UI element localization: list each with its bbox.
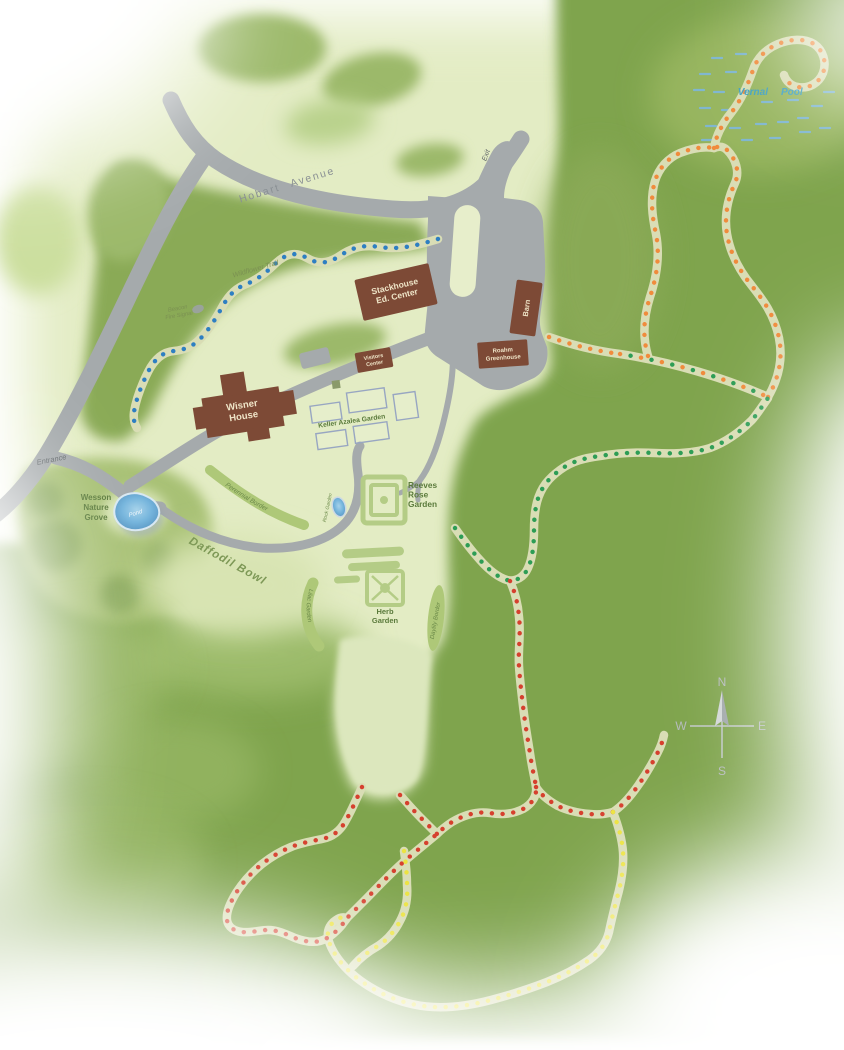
wisner-house-wing (220, 372, 247, 397)
rose-garden-center (380, 496, 388, 504)
azalea-bed (393, 392, 418, 421)
greenhouse-sign (477, 339, 529, 368)
vernal-pool-label-word1: Vernal (738, 87, 768, 98)
arboretum-trail-map: WisnerHouse StackhouseEd. Center Barn Vi… (0, 0, 844, 1050)
azalea-bed (346, 388, 386, 413)
tree-cluster (198, 14, 326, 82)
grove-tree (100, 575, 140, 615)
compass-e: E (758, 719, 766, 733)
map-canvas: WisnerHouse StackhouseEd. Center Barn Vi… (0, 0, 844, 1050)
compass-w: W (675, 719, 687, 733)
lawn-tongue (336, 636, 431, 793)
compass-s: S (718, 764, 726, 778)
wesson-nature-grove-label: WessonNatureGrove (81, 493, 112, 522)
vernal-pool-label-word2: Pool (781, 87, 803, 98)
hedge-row (334, 575, 360, 583)
compass-n: N (718, 675, 727, 689)
greenhouse-building: RoahmGreenhouse (477, 339, 529, 368)
herb-garden-center (380, 583, 390, 593)
azalea-bed (316, 430, 348, 450)
gazebo-icon (332, 380, 341, 389)
